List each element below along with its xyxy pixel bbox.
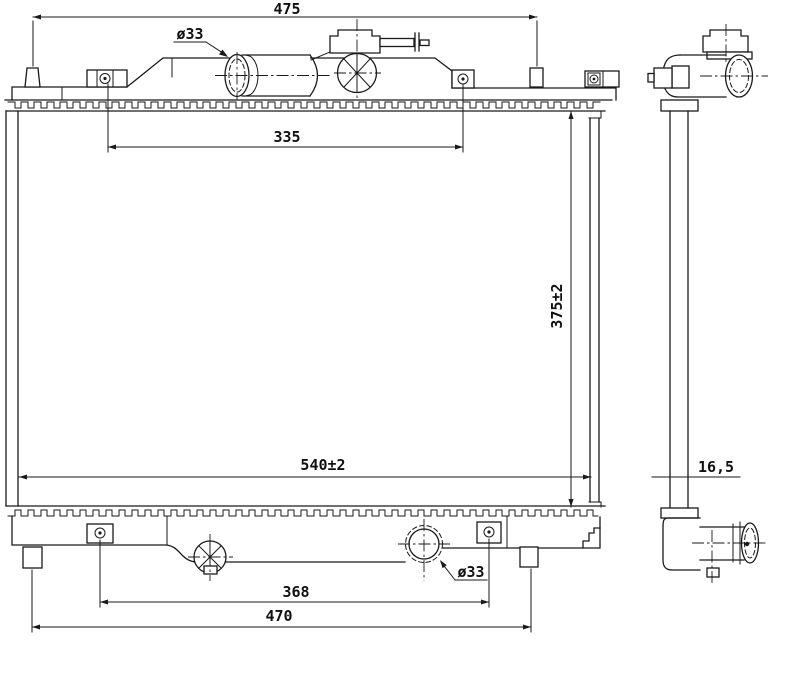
left-side-channel: [6, 111, 18, 506]
side-top-tank: [648, 55, 768, 111]
fin-serration-top: [8, 102, 600, 108]
side-bottom-tank: [661, 508, 768, 584]
side-top-flange: [661, 100, 698, 111]
side-view: [648, 24, 768, 584]
dimension-annotations: 475 ø33 335 375±2: [19, 0, 740, 632]
front-view: [5, 19, 619, 581]
dim-core-width: 540±2: [19, 456, 591, 480]
radiator-technical-drawing: 475 ø33 335 375±2: [0, 0, 800, 673]
drain-cock: [188, 534, 233, 581]
side-top-bracket: [648, 66, 689, 88]
dim-label-16-5: 16,5: [698, 458, 734, 476]
top-bracket-left: [87, 70, 127, 87]
fin-serration-bottom: [8, 510, 598, 516]
dim-core-height: 375±2: [548, 111, 574, 507]
dim-label-inlet-dia: ø33: [176, 25, 203, 43]
dim-label-335: 335: [273, 128, 300, 146]
dim-inlet-diameter: ø33: [174, 25, 228, 57]
side-drain-stub: [707, 568, 719, 577]
dim-label-368: 368: [282, 583, 309, 601]
side-bottom-flange: [661, 508, 698, 518]
drawing-canvas: 475 ø33 335 375±2: [0, 0, 800, 673]
top-bracket-right: [585, 71, 619, 87]
side-core-column: [670, 111, 688, 508]
bottom-pin-left: [23, 547, 42, 568]
filler-cap-assembly: [311, 19, 429, 100]
dim-label-375: 375±2: [548, 283, 566, 328]
inlet-pipe: [215, 52, 332, 100]
top-pin-left: [25, 68, 40, 87]
top-pin-right: [530, 68, 543, 87]
dim-label-outlet-dia: ø33: [457, 563, 484, 581]
bottom-pin-right: [520, 547, 538, 567]
bottom-right-foot: [583, 528, 600, 548]
dim-label-540: 540±2: [300, 456, 345, 474]
right-side-rail: [589, 111, 601, 507]
filler-neck: [330, 30, 380, 53]
dim-label-475: 475: [273, 0, 300, 18]
outlet-port: [398, 519, 450, 581]
dim-core-depth: 16,5: [652, 458, 740, 477]
dim-outlet-diameter: ø33: [440, 560, 487, 581]
dim-label-470: 470: [265, 607, 292, 625]
bleed-screw: [380, 33, 429, 51]
